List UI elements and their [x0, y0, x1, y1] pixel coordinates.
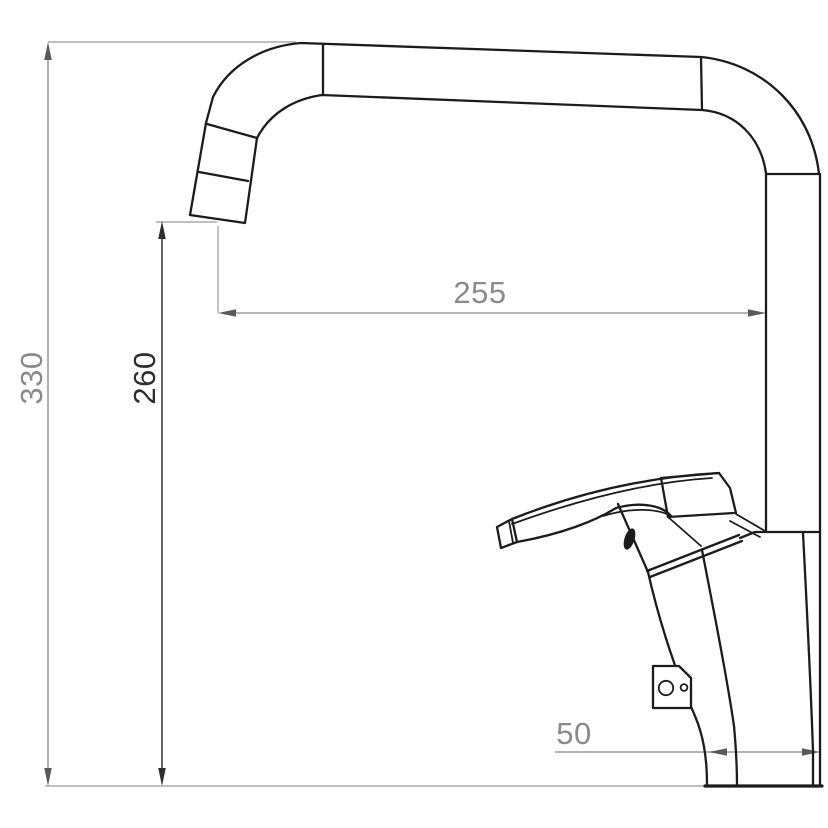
- faucet-outline: [190, 43, 822, 786]
- collar-line-top: [647, 535, 739, 571]
- housing-front-line: [668, 517, 701, 546]
- arrowhead-right-icon: [748, 309, 766, 317]
- dimension-base-depth: 50: [555, 716, 820, 756]
- nozzle-segment-line-1: [207, 124, 257, 138]
- body-front-contour: [702, 550, 737, 785]
- dimension-label-overall-height: 330: [14, 351, 49, 404]
- body-right-contour: [803, 533, 813, 785]
- dimension-spout-reach: 255: [218, 275, 766, 317]
- dimension-label-base-depth: 50: [556, 716, 591, 751]
- lever-handle: [497, 473, 719, 548]
- arrowhead-down-icon: [158, 768, 166, 786]
- arrowhead-down-icon: [44, 768, 52, 786]
- extension-lines: [45, 42, 707, 786]
- dimension-label-spout-clearance: 260: [127, 351, 162, 404]
- handle-end-cap: [497, 519, 517, 548]
- neck-line-2: [730, 521, 760, 537]
- tube-joint-right: [701, 57, 702, 110]
- nozzle-segment-line-2: [199, 172, 248, 181]
- neck-line-1: [736, 514, 765, 531]
- mounting-bracket: [653, 666, 691, 708]
- dimension-spout-clearance: 260: [127, 221, 166, 786]
- arrowhead-left-icon: [709, 748, 727, 756]
- arrowhead-up-icon: [158, 221, 166, 239]
- faucet-dimension-drawing: 330 260 255 50: [0, 0, 828, 828]
- handle-screw-icon: [621, 527, 637, 551]
- housing-v-notch: [661, 478, 734, 517]
- spout-outer-edge: [190, 43, 819, 215]
- arrowhead-left-icon: [218, 309, 236, 317]
- spout-inner-edge: [190, 95, 766, 223]
- collar-line-bottom: [650, 541, 742, 577]
- dimension-overall-height: 330: [14, 42, 52, 786]
- drawing-canvas: 330 260 255 50: [0, 0, 828, 828]
- dimension-label-spout-reach: 255: [453, 275, 506, 310]
- arrowhead-right-icon: [802, 748, 820, 756]
- riser-pipe: [730, 174, 820, 785]
- spout: [190, 43, 819, 223]
- faucet-body: [648, 533, 822, 786]
- arrowhead-up-icon: [44, 42, 52, 60]
